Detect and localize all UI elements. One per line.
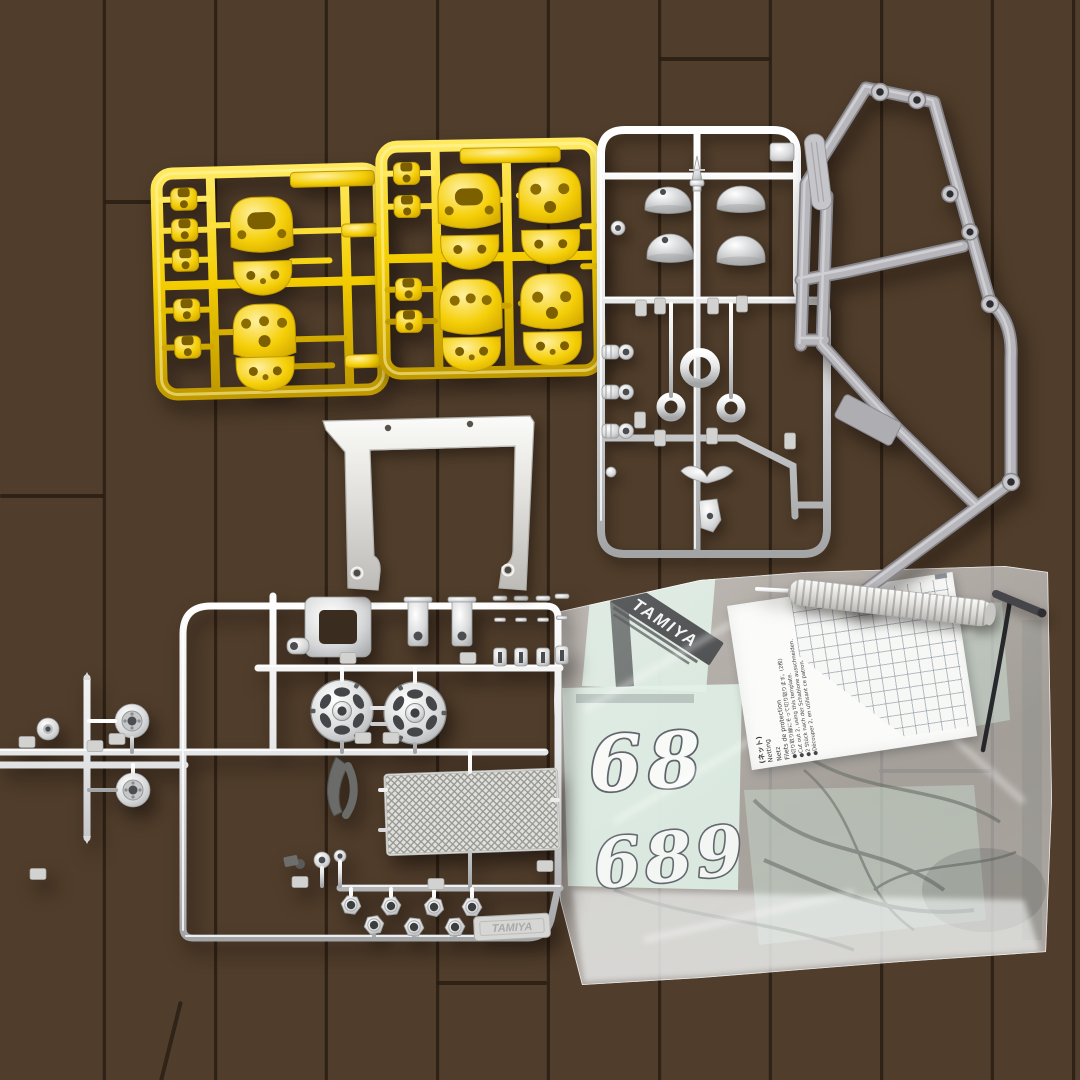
bag-top-items bbox=[0, 0, 1080, 1080]
rolled-netting bbox=[787, 578, 997, 627]
antenna-tip bbox=[996, 594, 1042, 613]
photo-canvas: TAMIYA 68 689 bbox=[0, 0, 1080, 1080]
antenna-cap bbox=[1038, 609, 1047, 618]
